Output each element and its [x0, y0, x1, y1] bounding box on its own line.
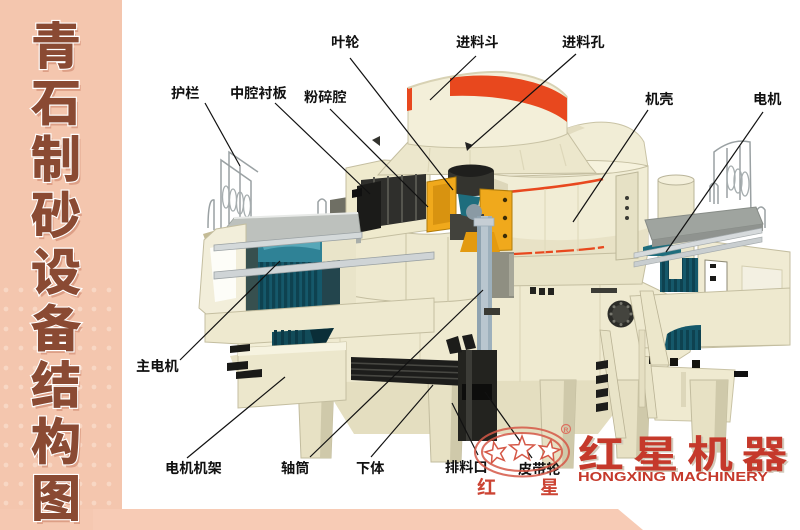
svg-text:HONGXING MACHINERY: HONGXING MACHINERY — [578, 470, 769, 484]
svg-text:R: R — [564, 427, 569, 434]
